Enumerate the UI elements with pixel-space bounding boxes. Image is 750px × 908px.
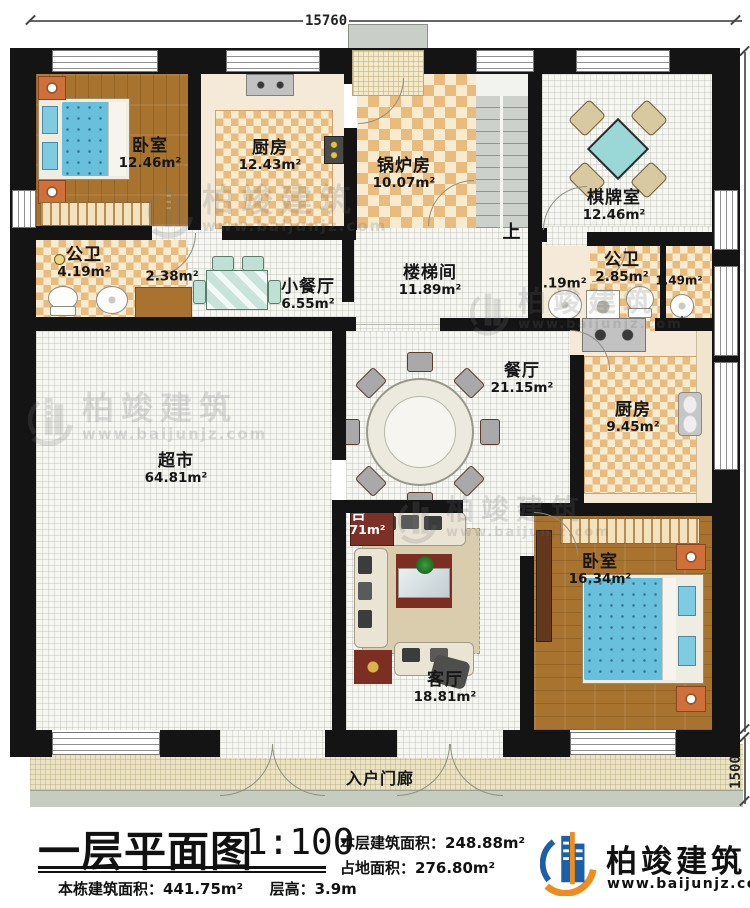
sink-icon <box>548 290 582 320</box>
chair <box>212 256 234 271</box>
mop-sink-icon <box>670 294 694 318</box>
room-label-dining: 餐厅21.15m² <box>491 362 554 396</box>
room-label-stairwell: 楼梯间11.89m² <box>399 264 462 298</box>
sofa-pillow <box>424 516 442 530</box>
wardrobe <box>560 518 700 544</box>
window <box>570 732 676 755</box>
floor-area-row: 本层建筑面积：248.88m² <box>340 832 525 853</box>
wall <box>655 318 712 331</box>
wall <box>587 232 712 246</box>
room-label-boiler: 锅炉房10.07m² <box>373 157 436 191</box>
window <box>52 732 160 755</box>
title-underline <box>38 871 326 873</box>
bed-sheet <box>662 578 676 680</box>
room-label-bath-left: 公卫4.19m² <box>57 246 110 280</box>
building-area-value: 441.75m² <box>163 880 243 898</box>
wall <box>528 228 547 242</box>
chair <box>242 256 264 271</box>
sofa-pillow <box>358 610 372 628</box>
window <box>714 266 738 356</box>
company-logo-text: 柏竣建筑 <box>606 836 746 881</box>
area-label-closet: 2.38m² <box>145 269 198 284</box>
room-label-living: 客厅18.81m² <box>414 671 477 705</box>
chair <box>407 352 433 372</box>
room-label-kitchen-right: 厨房9.45m² <box>606 401 659 435</box>
wall-outer-bottom <box>325 730 397 757</box>
porch-step-apron <box>30 790 743 807</box>
window <box>476 50 534 72</box>
nightstand <box>38 76 66 100</box>
area-label-bath-right-inner: 1.49m² <box>655 274 702 287</box>
wall <box>222 226 356 240</box>
wall <box>570 355 584 510</box>
threshold-line <box>356 324 440 325</box>
wall <box>332 317 346 460</box>
dimension-line-top <box>30 20 742 22</box>
chair <box>480 419 500 445</box>
sofa-pillow <box>401 515 419 529</box>
drawing-title: 一层平面图 <box>38 818 253 879</box>
wall <box>332 505 346 730</box>
title-underline <box>38 866 326 869</box>
wall <box>36 226 152 240</box>
double-sink-icon <box>678 392 702 436</box>
bed-quilt <box>62 102 110 176</box>
wall <box>342 240 354 302</box>
drawing-scale: 1:100 <box>246 822 354 863</box>
window <box>12 190 36 228</box>
storey-height-value: 3.9m <box>315 880 357 898</box>
chair <box>268 280 281 304</box>
toilet-tank <box>50 306 76 316</box>
dimension-line-porch <box>744 738 746 804</box>
wall-outer-bottom <box>503 730 570 757</box>
pillow <box>42 142 58 170</box>
wall <box>332 500 463 513</box>
wall-outer-bottom <box>160 730 220 757</box>
supermarket-floor <box>36 331 332 730</box>
company-logo-url: www.baijunjz.com <box>607 876 750 892</box>
floorplan-canvas: 卧室12.46m² 厨房12.43m² 锅炉房10.07m² 棋牌室12.46m… <box>0 0 750 908</box>
room-label-bath-right: 公卫2.85m² <box>595 251 648 285</box>
wardrobe <box>40 202 152 226</box>
room-label-bedroom-br: 卧室16.34m² <box>569 553 632 587</box>
room-label-porch: 入户门廊 <box>346 770 414 788</box>
site-area-value: 276.80m² <box>415 859 495 877</box>
pillow <box>678 586 696 616</box>
room-label-bedroom-tl: 卧室12.46m² <box>119 137 182 171</box>
gas-meter-icon <box>324 136 344 164</box>
wall-outer-bottom <box>10 730 52 757</box>
wall <box>520 556 534 730</box>
nightstand <box>38 180 66 204</box>
wall-outer-left <box>10 48 36 757</box>
toilet-tank <box>628 308 652 318</box>
sofa-pillow <box>358 582 372 600</box>
stove-icon <box>246 74 294 96</box>
wall <box>440 318 580 331</box>
small-dining-table <box>206 270 268 310</box>
site-area-label: 占地面积： <box>340 859 415 877</box>
chimney-cap <box>348 24 428 50</box>
wall <box>36 317 356 331</box>
pillow <box>42 106 58 134</box>
building-area-row: 本栋建筑面积：441.75m² 层高：3.9m <box>58 878 357 899</box>
room-label-chess: 棋牌室12.46m² <box>583 189 646 223</box>
company-logo-icon <box>540 826 598 896</box>
stairs-rail <box>500 96 503 228</box>
wall <box>344 128 357 230</box>
wall <box>188 74 201 230</box>
dining-table-inner <box>384 396 456 468</box>
room-label-small-dining: 小餐厅6.55m² <box>281 278 335 312</box>
storey-height-label: 层高： <box>270 880 315 898</box>
window <box>576 50 670 72</box>
room-label-kitchen-top: 厨房12.43m² <box>239 139 302 173</box>
area-label-lavatory: 2.19m² <box>533 276 586 291</box>
stairs-up-label: 上 <box>503 223 522 243</box>
window <box>52 50 158 72</box>
room-label-supermarket: 超市64.81m² <box>145 452 208 486</box>
floor-area-label: 本层建筑面积： <box>340 834 445 852</box>
nightstand <box>676 686 706 712</box>
wall <box>528 74 542 230</box>
nightstand <box>676 544 706 570</box>
wall-outer-bottom <box>676 730 740 757</box>
sink-icon <box>96 286 128 314</box>
site-area-row: 占地面积：276.80m² <box>340 857 495 878</box>
pillow <box>678 636 696 666</box>
floor-area-value: 248.88m² <box>445 834 525 852</box>
window <box>714 190 738 250</box>
building-area-label: 本栋建筑面积： <box>58 880 163 898</box>
sofa-pillow <box>358 556 372 574</box>
side-table <box>354 650 392 684</box>
dimension-line-side <box>744 52 746 732</box>
window <box>714 362 738 470</box>
plant-icon <box>416 556 434 574</box>
bed-quilt <box>584 578 664 680</box>
dimension-top-value: 15760 <box>303 13 349 29</box>
sofa-pillow <box>402 648 420 662</box>
window <box>226 50 320 72</box>
closet-cabinet <box>135 287 192 319</box>
